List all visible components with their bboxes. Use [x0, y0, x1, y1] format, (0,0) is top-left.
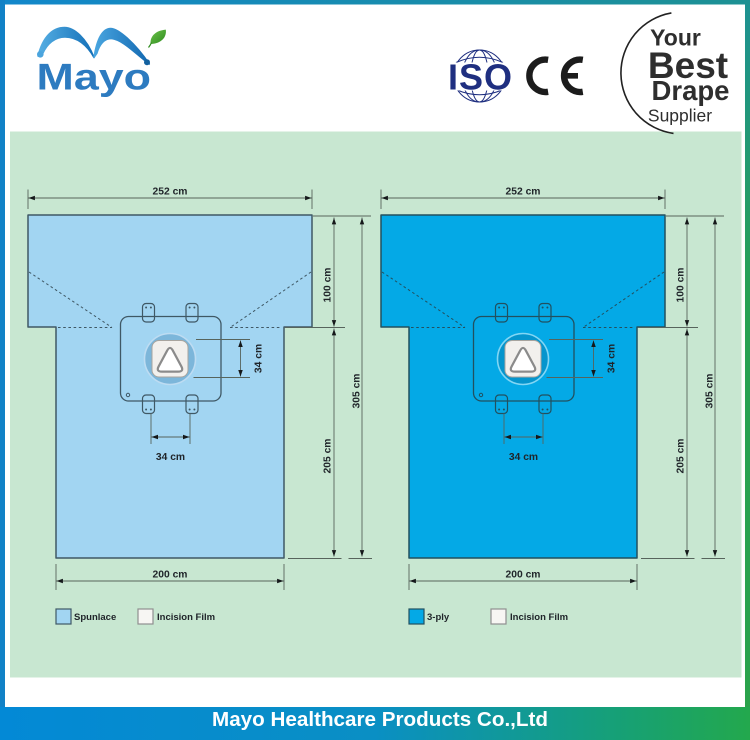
svg-text:100 cm: 100 cm [323, 268, 334, 303]
svg-text:305 cm: 305 cm [705, 374, 716, 409]
svg-text:ISO: ISO [448, 57, 513, 98]
svg-text:34 cm: 34 cm [509, 452, 538, 463]
svg-text:34 cm: 34 cm [607, 344, 618, 373]
svg-text:Mayo: Mayo [37, 57, 152, 98]
svg-text:205 cm: 205 cm [676, 439, 687, 474]
svg-text:Mayo Healthcare Products Co.,L: Mayo Healthcare Products Co.,Ltd [212, 709, 548, 731]
svg-text:3-ply: 3-ply [427, 612, 450, 623]
svg-text:100 cm: 100 cm [676, 268, 687, 303]
svg-text:252 cm: 252 cm [506, 187, 541, 198]
svg-text:252 cm: 252 cm [153, 187, 188, 198]
svg-text:305 cm: 305 cm [352, 374, 363, 409]
svg-text:Incision Film: Incision Film [157, 612, 215, 623]
svg-text:34 cm: 34 cm [254, 344, 265, 373]
svg-text:Incision Film: Incision Film [510, 612, 568, 623]
svg-text:200 cm: 200 cm [153, 570, 188, 581]
svg-text:34 cm: 34 cm [156, 452, 185, 463]
svg-text:Supplier: Supplier [648, 106, 712, 126]
svg-text:Drape: Drape [652, 75, 730, 106]
svg-text:Spunlace: Spunlace [74, 612, 116, 623]
svg-text:205 cm: 205 cm [323, 439, 334, 474]
svg-text:200 cm: 200 cm [506, 570, 541, 581]
